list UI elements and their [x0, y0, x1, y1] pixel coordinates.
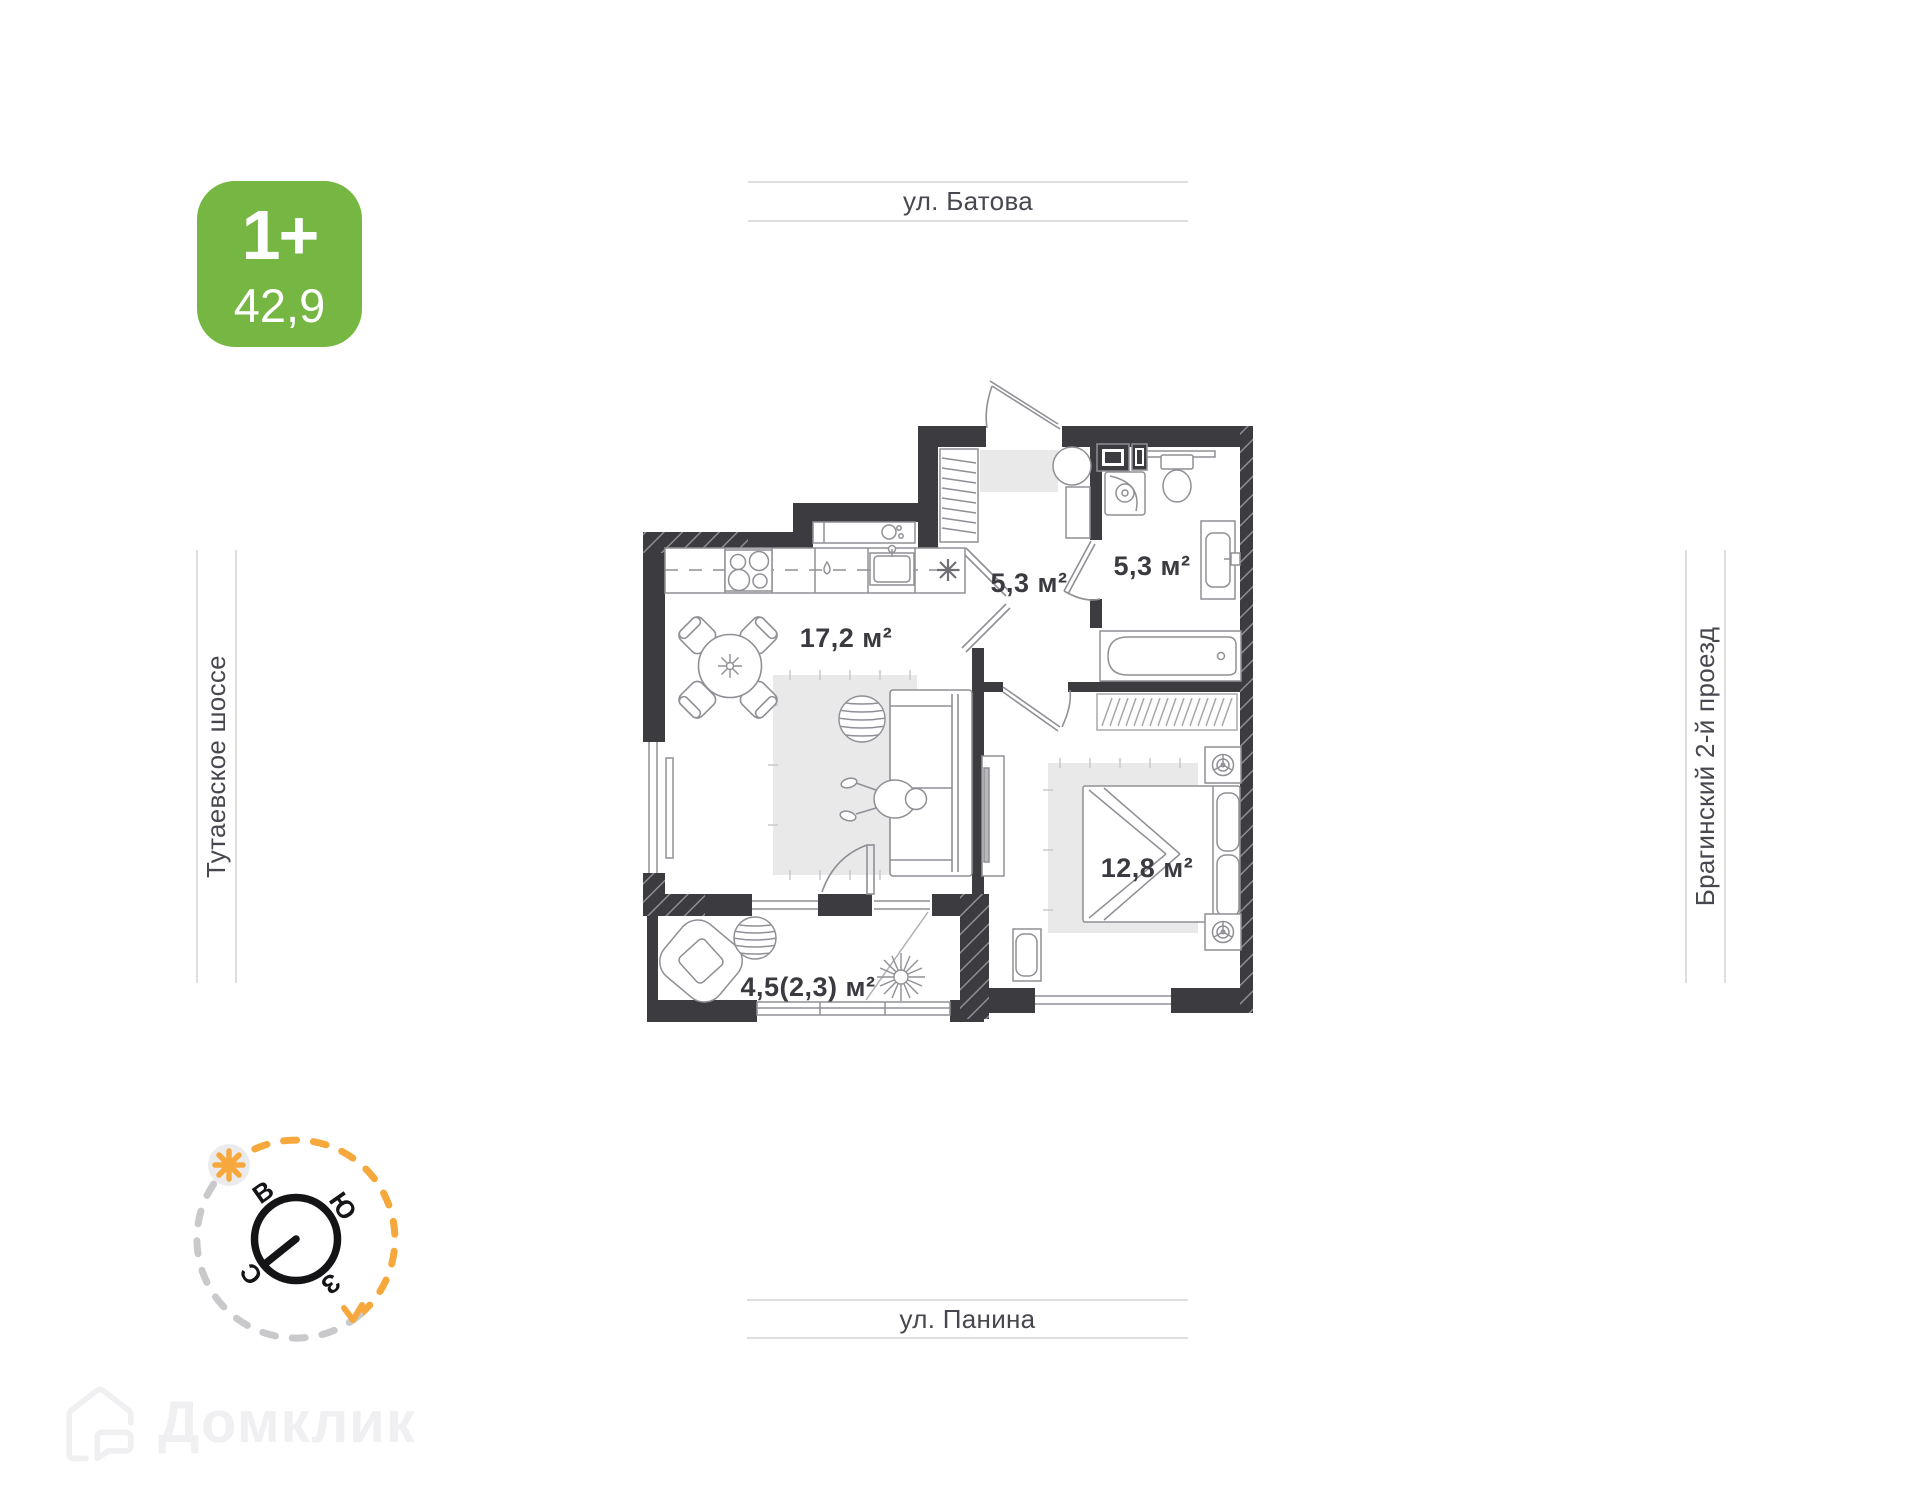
room-label-bedroom: 12,8 м²: [1101, 853, 1194, 883]
bathroom-door: [1064, 541, 1100, 600]
snowflake-icon: [937, 559, 959, 581]
bathroom-sink: [1201, 521, 1240, 599]
dining-set: [676, 614, 780, 721]
room-label-balcony: 4,5(2,3) м²: [740, 972, 875, 1002]
bedroom-furniture: [1013, 694, 1241, 981]
watermark-brand: Домклик: [158, 1389, 416, 1456]
compass: В Ю С З: [197, 1140, 395, 1338]
bedroom-door: [1003, 687, 1070, 731]
balcony-striped-ball: [733, 917, 777, 959]
bedside-lamp-bottom: [1205, 914, 1241, 950]
table-plant-icon: [718, 654, 742, 678]
entry-console-round: [1053, 447, 1091, 485]
balcony-armchair: [652, 912, 751, 1010]
bathtub: [1100, 631, 1241, 681]
bedroom-bench: [1013, 929, 1041, 981]
pouf: [838, 696, 886, 742]
vent-shafts: [1097, 444, 1147, 471]
niche-counter: [813, 522, 915, 543]
entry-rug: [980, 450, 1058, 492]
room-label-kitchen-living: 17,2 м²: [800, 623, 893, 653]
room-label-bathroom: 5,3 м²: [1114, 551, 1191, 581]
entry-wardrobe: [940, 449, 978, 542]
washing-machine: [1105, 472, 1145, 515]
toilet: [1161, 455, 1193, 502]
room-label-hallway: 5,3 м²: [991, 568, 1068, 598]
stove: [725, 550, 772, 591]
bedroom-wardrobe: [1097, 694, 1237, 730]
floor-plan: 17,2 м² 5,3 м² 5,3 м² 12,8 м² 4,5(2,3) м…: [643, 381, 1253, 1022]
balcony-plant-icon: [877, 953, 925, 1001]
radiator: [666, 758, 673, 858]
entrance-door: [986, 381, 1060, 429]
tv-panel: [982, 756, 1004, 876]
sun-icon: [208, 1144, 250, 1186]
domclick-house-icon: [58, 1380, 142, 1464]
entry-console: [1066, 487, 1090, 538]
watermark: Домклик: [58, 1380, 416, 1464]
floor-plan-svg: 17,2 м² 5,3 м² 5,3 м² 12,8 м² 4,5(2,3) м…: [0, 0, 1920, 1507]
bedside-lamp-top: [1205, 747, 1241, 783]
